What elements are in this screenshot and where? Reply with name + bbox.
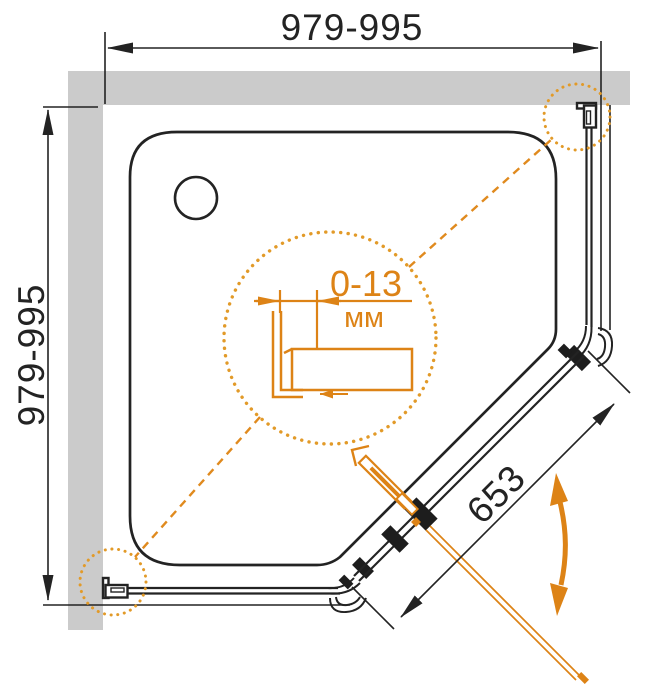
fixed-panel-bottom [103, 578, 340, 598]
swing-arrow-down [550, 583, 568, 616]
detail-unit-label: мм [344, 302, 384, 334]
dim-door-label: 653 [459, 457, 534, 532]
profile-section: 0-13 мм [254, 263, 412, 399]
dim-left-label: 979-995 [11, 284, 52, 427]
callout-leader [409, 139, 552, 267]
door-swing-arc [550, 473, 568, 616]
technical-drawing: 979-995 979-995 653 [0, 0, 646, 700]
corner-post-bottom [328, 557, 374, 612]
drain-circle [175, 177, 217, 219]
swing-arrow-up [550, 473, 568, 506]
door-open [352, 446, 589, 684]
callout-leader [135, 417, 260, 557]
diagram-canvas: 979-995 979-995 653 [0, 0, 646, 700]
detail-callout: 0-13 мм [80, 84, 610, 615]
detail-range-label: 0-13 [330, 263, 402, 304]
dim-top-label: 979-995 [281, 7, 424, 48]
fixed-panel-right [577, 103, 610, 330]
door-clamp [381, 525, 409, 553]
